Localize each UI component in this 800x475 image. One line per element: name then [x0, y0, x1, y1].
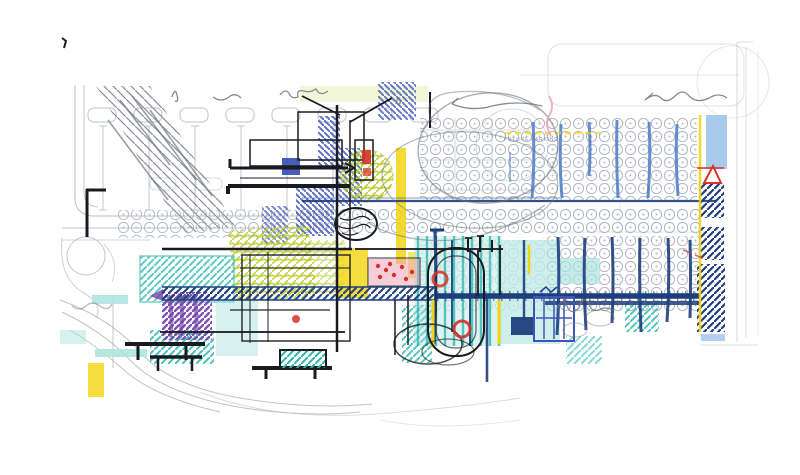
corner-mark: [62, 38, 66, 48]
future-area-label: FUTURE PARKING: [504, 137, 559, 143]
scanned-sketch-page: FUTURE PARKING: [0, 0, 800, 475]
skyblue-block-right: [706, 115, 727, 169]
tree-grid-upper-right: [420, 118, 697, 200]
teal-strip-3: [60, 330, 86, 344]
red-block-core-2: [363, 168, 371, 176]
red-dot: [292, 315, 300, 323]
navy-hatched-beam: [162, 287, 437, 300]
navy-hatch-block-2: [699, 227, 724, 260]
teal-wash-left: [216, 300, 258, 356]
pink-dot-panel: [368, 258, 420, 286]
navy-solid-block: [511, 317, 533, 335]
tree-row-middle: [300, 208, 700, 235]
skyblue-strip-right: [701, 334, 725, 341]
teal-wash-right-1: [560, 258, 600, 284]
red-block-core: [362, 150, 371, 164]
ink-framed-teal-box: [280, 350, 326, 369]
yellow-patch-left: [88, 363, 104, 397]
sketch-canvas: FUTURE PARKING: [0, 0, 800, 475]
teal-strip-1: [92, 295, 128, 304]
